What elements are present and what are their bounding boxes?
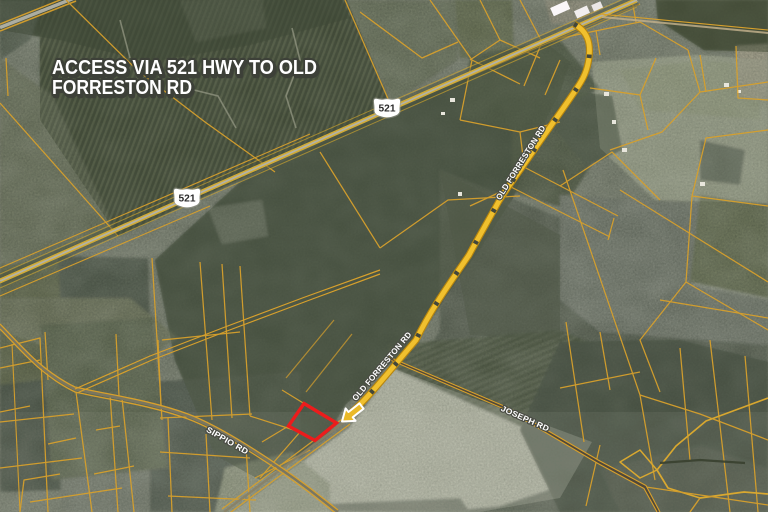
svg-text:521: 521 [379, 104, 396, 115]
svg-text:521: 521 [179, 194, 196, 205]
svg-text:FORRESTON RD: FORRESTON RD [52, 76, 192, 99]
